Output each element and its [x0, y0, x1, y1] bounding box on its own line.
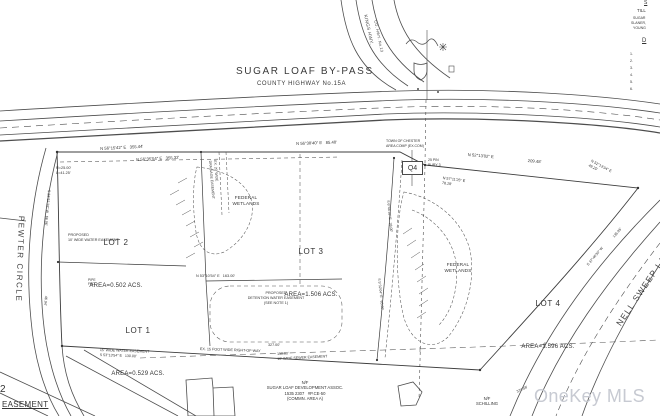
- curve-data: R=25.00' L=41.25': [56, 166, 71, 176]
- titleblock-line-2: SUGAR: [633, 16, 645, 21]
- easement-line-bearing: N 53°10'54" E 163.00': [196, 274, 235, 279]
- distance-northeast: 209.48': [528, 158, 542, 165]
- onekey-mls-watermark: OneKey MLS: [534, 386, 645, 407]
- titleblock-heading-2: D: [642, 38, 646, 46]
- lot-4-label: LOT 4 AREA=1.596 ACS.: [521, 263, 574, 386]
- lot-4-name: LOT 4: [521, 299, 574, 308]
- titleblock-item-3: 3.: [630, 66, 633, 71]
- titleblock-line-1: TILL: [637, 8, 646, 14]
- lot-4-area: AREA=1.596 ACS.: [521, 344, 574, 350]
- easement-label: EASEMENT: [2, 400, 48, 409]
- titleblock-line-4: YOUNG: [633, 26, 646, 31]
- nf-schilling-note: N/F SCHILLING: [476, 396, 498, 407]
- proposed-water-easement-note: PROPOSED 10' WIDE WATER EASEMENT: [68, 233, 119, 243]
- distance-327: 327.00': [268, 343, 280, 348]
- titleblock-item-4: 4.: [630, 73, 633, 78]
- lot-2-label: LOT 2 AREA=0.502 ACS.: [89, 202, 142, 325]
- town-line-note: TOWN OF CHESTER AREA COMP (EX.COM): [386, 139, 424, 148]
- titleblock-item-5: 5.: [630, 80, 633, 85]
- sugar-loaf-bypass-label: SUGAR LOAF BY-PASS: [236, 66, 374, 78]
- lot-2-area: AREA=0.502 ACS.: [89, 283, 142, 289]
- nf-sugar-loaf-note: N/F SUGAR LOAF DEVELOPMENT ASSOC. 1535 2…: [267, 380, 343, 402]
- lot-3-label: LOT 3 AREA=1.506 ACS.: [284, 211, 337, 334]
- pipe-found-note: PIPE FND.: [88, 278, 96, 287]
- distance-west-2: 46.94': [43, 296, 48, 306]
- survey-plat-map: SUGAR LOAF BY-PASS COUNTY HIGHWAY No.15A…: [0, 0, 660, 416]
- titleblock-item-2: 2.: [630, 59, 633, 64]
- titleblock-heading-1: S: [644, 0, 647, 7]
- water-easement-bottom-note: 15' WIDE WATER EASEMENT S 53°13'54" E 13…: [100, 348, 150, 359]
- county-highway-label: COUNTY HIGHWAY No.15A: [257, 81, 346, 88]
- q4-marker: Q4: [402, 161, 423, 175]
- titleblock-item-6: 6.: [630, 87, 633, 92]
- detention-easement-note: PROPOSED DETENTION WATER EASEMENT (SEE N…: [248, 291, 305, 305]
- pin-note: 25 PIN BURY 3: [428, 158, 441, 167]
- federal-wetlands-label-west: FEDERAL WETLANDS: [232, 195, 259, 206]
- titleblock-item-1: 1.: [630, 52, 633, 57]
- lot-1-area: AREA=0.529 ACS.: [111, 371, 164, 377]
- titleblock-line-3: SLANER,: [631, 21, 646, 26]
- lot-1-name: LOT 1: [111, 326, 164, 335]
- corner-number-label: 2: [0, 384, 6, 395]
- federal-wetlands-label-east: FEDERAL WETLANDS: [444, 262, 471, 273]
- lot-3-name: LOT 3: [284, 247, 337, 256]
